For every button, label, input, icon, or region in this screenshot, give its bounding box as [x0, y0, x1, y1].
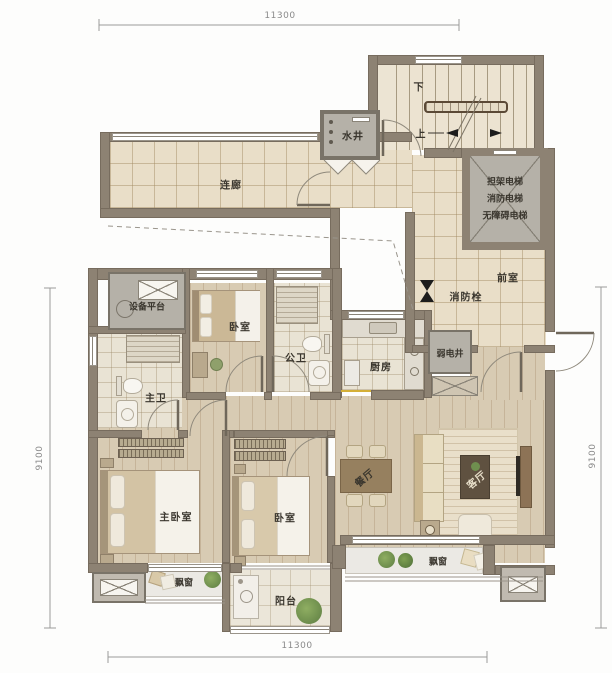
window	[230, 626, 330, 634]
wall	[332, 545, 346, 569]
stove-burner	[410, 367, 419, 376]
wall	[88, 430, 142, 438]
nightstand	[100, 458, 114, 468]
label-weak-current-shaft: 弱电井	[436, 347, 463, 360]
sink-master	[116, 400, 138, 428]
dimension-left: 9100	[35, 446, 45, 471]
closet-master	[118, 449, 184, 458]
floor-plan: 连廊 水井 下 上 担架电梯 消防电梯 无障碍电梯 前室 消防栓 弱电井 设备平…	[0, 0, 612, 673]
label-elevator-1: 担架电梯	[487, 175, 523, 188]
wall	[327, 430, 335, 436]
plant	[296, 598, 322, 624]
bed-pillow	[200, 317, 212, 337]
label-master-bedroom: 主卧室	[160, 509, 193, 524]
plant	[204, 571, 221, 588]
kitchen-threshold-gold	[341, 390, 371, 392]
sofa-seam	[423, 492, 443, 493]
bed-pillow	[241, 481, 255, 511]
wall	[186, 392, 226, 400]
dimension-right: 9100	[588, 444, 598, 469]
toilet-bowl	[123, 378, 143, 394]
chair	[210, 358, 223, 371]
label-stair-up: 上	[416, 126, 427, 141]
lamp	[425, 525, 435, 535]
wall	[222, 430, 230, 563]
wall	[545, 370, 555, 548]
label-elevator-2: 消防电梯	[487, 192, 523, 205]
wall	[330, 563, 342, 632]
window	[112, 133, 318, 141]
wall	[234, 430, 335, 438]
plant	[398, 553, 413, 568]
tv-cabinet	[520, 446, 532, 508]
label-elevator-3: 无障碍电梯	[482, 209, 527, 222]
shower-guest	[276, 286, 318, 324]
window	[148, 564, 222, 572]
kitchen-sink	[369, 322, 397, 334]
ac-xbox	[508, 576, 538, 593]
shaft-dot	[329, 120, 333, 124]
toilet-master	[116, 376, 144, 396]
label-corridor: 连廊	[220, 177, 242, 192]
label-water-shaft: 水井	[342, 128, 364, 143]
sink-guest	[308, 360, 330, 386]
wall	[424, 148, 462, 158]
dimension-bottom: 11300	[281, 641, 312, 651]
sink-basin	[121, 408, 134, 421]
label-bay-window-right: 飘窗	[429, 555, 447, 568]
label-bay-window-left: 飘窗	[175, 576, 193, 589]
wall	[332, 268, 342, 398]
label-master-bath: 主卫	[145, 390, 167, 405]
sofa-back	[415, 435, 423, 521]
bed-headboard	[233, 477, 239, 555]
toilet-tank	[324, 334, 330, 354]
stair-handrail	[424, 101, 508, 113]
label-stair-down: 下	[414, 79, 425, 94]
door-arc	[556, 333, 594, 371]
wall	[524, 345, 555, 353]
dimension-top: 11300	[264, 11, 295, 21]
ac-xbox	[100, 579, 138, 596]
wall	[534, 55, 544, 150]
elevator-door-slot	[493, 150, 517, 155]
bed-pillow	[110, 513, 125, 547]
shaft-dot	[329, 140, 333, 144]
wall	[100, 208, 338, 218]
shower-master	[126, 335, 180, 363]
wall	[310, 392, 341, 400]
window	[276, 270, 322, 278]
equipment-xbox	[138, 280, 178, 300]
plant	[378, 551, 395, 568]
sofa-seam	[423, 463, 443, 464]
label-bedroom-top: 卧室	[229, 319, 251, 334]
wall	[222, 563, 230, 632]
wall	[483, 545, 495, 575]
washer	[233, 575, 259, 619]
window	[196, 270, 258, 278]
wall	[88, 268, 98, 570]
bed-headboard	[193, 291, 199, 341]
wall	[266, 268, 274, 392]
dining-chair	[369, 494, 386, 507]
window	[415, 56, 462, 64]
closet-master	[118, 438, 184, 447]
bed-pillow	[110, 475, 125, 509]
wall	[100, 132, 110, 218]
shaft-dot	[329, 130, 333, 134]
label-kitchen: 厨房	[370, 359, 392, 374]
wall	[230, 563, 242, 573]
tv-screen	[516, 456, 520, 496]
bed-duvet	[235, 291, 260, 341]
bed-top	[192, 290, 260, 342]
window	[348, 311, 404, 319]
desk	[192, 352, 208, 378]
bed-headboard	[101, 471, 108, 553]
label-bedroom-bottom: 卧室	[274, 510, 296, 525]
label-equipment-platform: 设备平台	[129, 300, 165, 313]
bed-pillow	[200, 294, 212, 314]
window	[352, 536, 480, 544]
entry-foyer-floor	[470, 347, 545, 400]
shoe-cabinet	[432, 376, 478, 396]
wall	[371, 390, 424, 400]
dining-chair	[369, 445, 386, 458]
dining-chair	[346, 494, 363, 507]
label-anteroom: 前室	[497, 270, 519, 285]
bay-pillow	[160, 574, 177, 591]
closet-bedroom	[234, 439, 286, 449]
toilet-tank	[116, 376, 122, 396]
ac-platform-left	[92, 572, 146, 603]
dining-chair	[346, 445, 363, 458]
washer-knob	[238, 579, 243, 584]
window	[89, 336, 97, 366]
bed-second	[232, 476, 310, 556]
closet-bedroom	[234, 451, 286, 461]
label-fire-hydrant: 消防栓	[450, 289, 483, 304]
fridge	[344, 360, 360, 386]
bed-pillow	[241, 519, 255, 549]
sofa	[414, 434, 444, 522]
nightstand	[234, 464, 246, 474]
shaft-vent	[352, 117, 370, 122]
label-guest-bath: 公卫	[285, 350, 307, 365]
wall	[405, 212, 415, 353]
sink-basin	[313, 366, 326, 379]
washer-door	[240, 590, 253, 603]
wall	[178, 430, 188, 438]
ac-platform-right	[500, 566, 546, 602]
label-balcony: 阳台	[275, 593, 297, 608]
wall	[264, 392, 272, 400]
